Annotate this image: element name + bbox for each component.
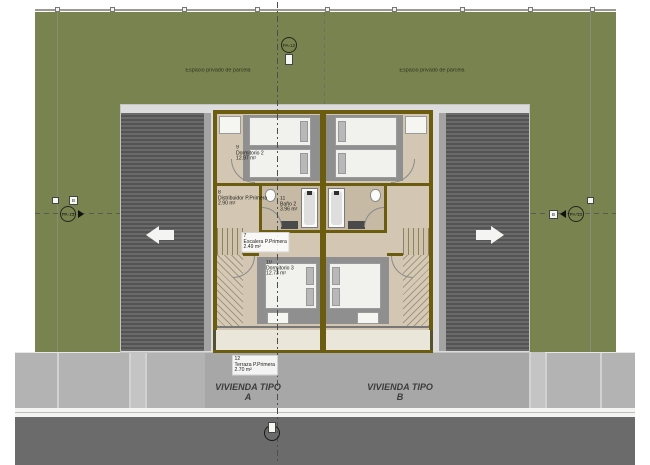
wall-terrace	[323, 350, 433, 353]
section-arrow-left-icon	[560, 210, 566, 218]
sidewalk-joint	[600, 353, 602, 408]
fence-post	[255, 7, 260, 12]
roof-slope-arrow-left-bar	[159, 230, 174, 240]
house-b-plan	[323, 107, 433, 353]
sidewalk-light-strip	[131, 352, 145, 408]
room-label-bano-2: 11 Baño 2 3.96 m²	[280, 196, 297, 213]
roof-right	[439, 113, 529, 351]
closet	[405, 116, 427, 134]
vanity	[281, 221, 298, 229]
label-vivienda-tipo-b: VIVIENDA TIPO B	[345, 382, 455, 402]
wall-partition	[326, 230, 387, 233]
wall-bath	[384, 183, 387, 233]
roof-slope-arrow-left-icon	[146, 226, 159, 244]
vivienda-b-line2: B	[397, 392, 404, 402]
roof-slope-arrow-right-icon	[491, 226, 504, 244]
fence-post	[182, 7, 187, 12]
fence-post	[528, 7, 533, 12]
pillow	[338, 153, 346, 174]
bed	[335, 117, 397, 146]
section-arrow-right-icon	[78, 210, 84, 218]
bathtub-basin	[304, 191, 315, 225]
bed	[335, 149, 397, 178]
roof-slope-arrow-right-bar	[476, 230, 491, 240]
terrace-window	[217, 326, 320, 328]
vivienda-a-line1: VIVIENDA TIPO	[215, 382, 281, 392]
closet	[219, 116, 241, 134]
room-area: 12.73 m²	[266, 271, 294, 277]
section-marker-top: PA-12	[281, 37, 297, 53]
vivienda-a-line2: A	[245, 392, 252, 402]
fence-tag-left	[52, 197, 59, 204]
section-marker-bottom-flag	[268, 422, 276, 433]
wall-top	[323, 110, 433, 114]
room-area: 3.96 m²	[280, 207, 297, 213]
bathtub-tap	[307, 191, 312, 195]
parcel-label-right: Espacio privado de parcela	[374, 68, 491, 73]
roof-gutter	[439, 113, 446, 351]
vivienda-b-line1: VIVIENDA TIPO	[367, 382, 433, 392]
room-label-escalera: 7 Escalera P.Primera 2.49 m²	[241, 232, 289, 252]
party-wall-extension-line	[324, 12, 325, 105]
roof-left	[121, 113, 211, 351]
bathtub	[301, 188, 318, 228]
terrace	[323, 330, 433, 350]
pillow	[300, 121, 308, 142]
stairs	[403, 228, 429, 255]
section-marker-left: PA-13	[60, 206, 76, 222]
section-marker-right: PA-13	[568, 206, 584, 222]
drawing-sheet: Espacio privado de parcela Espacio priva…	[0, 0, 650, 465]
room-label-distribuidor: 8 Distribuidor P.Primera 2.90 m²	[218, 190, 267, 207]
curb-line	[15, 412, 635, 413]
room-area: 2.49 m²	[244, 245, 287, 251]
sidewalk-joint	[145, 353, 147, 408]
room-label-dormitorio-3: 10 Dormitorio 3 12.73 m²	[266, 260, 294, 277]
dresser	[357, 312, 379, 324]
pillow	[306, 267, 314, 285]
wall-top	[213, 110, 323, 114]
road	[15, 417, 635, 465]
bathtub-tap	[334, 191, 339, 195]
fence-post	[392, 7, 397, 12]
bathtub	[328, 188, 345, 228]
room-label-dormitorio-2: 9 Dormitorio 2 12.97 m²	[236, 145, 264, 162]
house-a-plan	[213, 107, 323, 353]
fence-line-right	[590, 12, 591, 352]
sidewalk-joint	[545, 353, 547, 408]
double-bed	[329, 263, 381, 309]
roof-gutter	[204, 113, 211, 351]
room-area: 2.90 m²	[218, 201, 267, 207]
sidewalk-light-strip	[531, 352, 545, 408]
fence-line-left	[57, 12, 58, 352]
toilet	[370, 189, 381, 202]
fence-post	[460, 7, 465, 12]
wall-outer	[429, 110, 433, 330]
stairs	[217, 228, 243, 255]
terrace-window	[326, 326, 429, 328]
wall-terrace	[213, 350, 323, 353]
room-area: 2.70 m²	[235, 368, 275, 374]
pillow	[338, 121, 346, 142]
fence-tag-right	[587, 197, 594, 204]
pillow	[300, 153, 308, 174]
dresser	[267, 312, 289, 324]
grid-marker-left: B	[69, 196, 78, 205]
bed	[249, 117, 311, 146]
room-area: 12.97 m²	[236, 156, 264, 162]
terrace	[213, 330, 323, 350]
fence-post	[110, 7, 115, 12]
sidewalk-joint	[529, 353, 531, 408]
label-vivienda-tipo-a: VIVIENDA TIPO A	[193, 382, 303, 402]
grid-marker-right: B	[549, 210, 558, 219]
pillow	[332, 267, 340, 285]
pillow	[332, 288, 340, 306]
pillow	[306, 288, 314, 306]
parcel-label-left: Espacio privado de parcela	[160, 68, 277, 73]
fence-post	[325, 7, 330, 12]
section-marker-top-flag	[285, 54, 293, 65]
vanity	[348, 221, 365, 229]
sidewalk-joint	[57, 353, 59, 408]
sidewalk-joint	[129, 353, 131, 408]
bathtub-basin	[331, 191, 342, 225]
room-label-terraza: 12 Terraza P.Primera 2.70 m²	[232, 355, 278, 375]
